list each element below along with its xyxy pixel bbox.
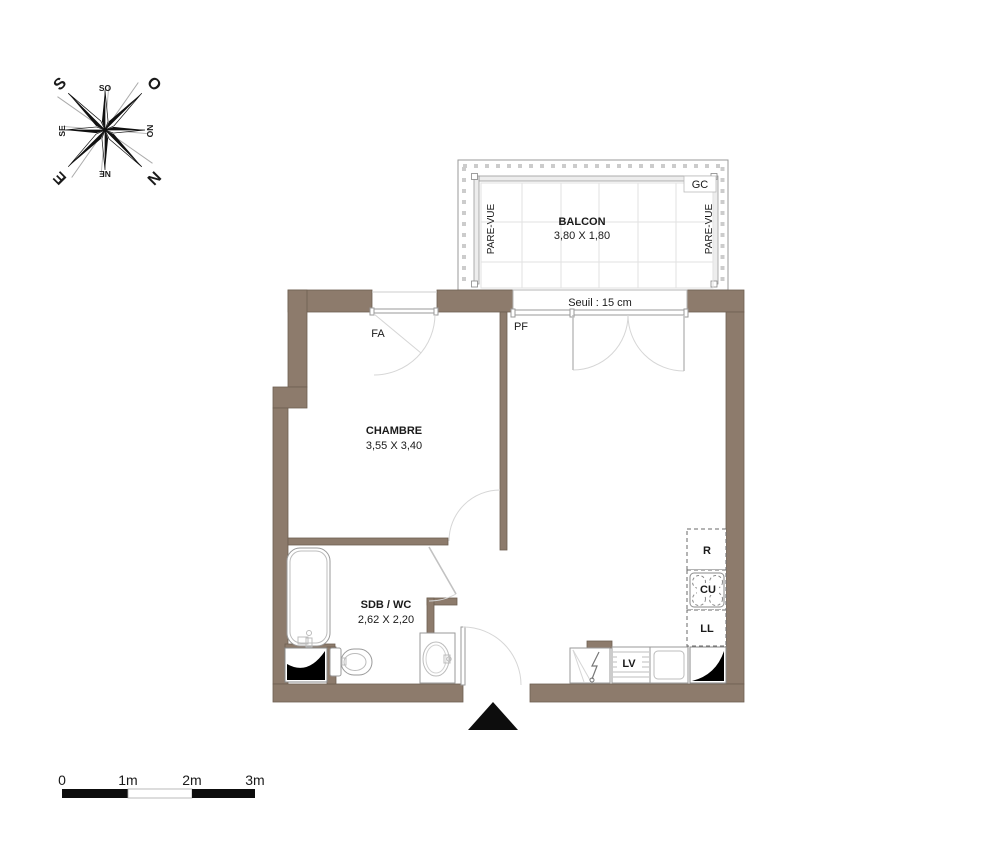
wall-left-jog: [273, 387, 307, 408]
compass-label-so: SO: [99, 83, 112, 93]
pf-french-door: [511, 309, 688, 371]
scale-segment-1: [62, 789, 128, 798]
compass-star: [65, 90, 145, 170]
scale-tick-0: 0: [58, 772, 66, 788]
floor-plan-page: S O N E SO NO NE SE GC B: [0, 0, 1000, 857]
washing-machine-label: LL: [700, 623, 714, 635]
pare-vue-left-label: PARE-VUE: [486, 203, 497, 254]
dishwasher-label: LV: [622, 658, 636, 670]
washbasin: [420, 633, 455, 683]
partition-electrical-stub: [587, 641, 612, 648]
scale-tick-1m: 1m: [118, 772, 137, 788]
wall-top-mid: [437, 290, 513, 312]
partition-chambre-sejour: [500, 312, 507, 550]
compass-label-o: O: [143, 74, 164, 95]
compass-label-ne: NE: [99, 169, 111, 179]
fridge-label: R: [703, 545, 711, 557]
chambre-label: CHAMBRE: [366, 425, 422, 437]
dishwasher: LV: [612, 647, 650, 683]
scale-tick-3m: 3m: [245, 772, 264, 788]
kitchen-sink: [650, 647, 688, 683]
kitchen: R CU LL: [570, 529, 726, 683]
sdb-dims: 2,62 X 2,20: [358, 614, 414, 626]
hob-box: CU: [687, 570, 726, 610]
balcony-dims: 3,80 X 1,80: [554, 230, 610, 242]
compass-label-n: N: [144, 168, 164, 188]
partition-sdb-right: [427, 598, 434, 633]
compass-label-no: NO: [145, 125, 155, 138]
gc-label: GC: [692, 179, 709, 191]
wall-top-right: [687, 290, 744, 312]
privacy-screen-top: [479, 176, 713, 181]
chambre-door: [449, 490, 500, 541]
entrance-door: [461, 627, 521, 685]
pf-label: PF: [514, 321, 528, 333]
openings: FA Seuil : 15 cm PF: [370, 290, 688, 685]
bathtub: [287, 548, 330, 647]
shaft-left: [285, 648, 327, 682]
wall-bottom-left: [273, 684, 463, 702]
balcony-label: BALCON: [558, 216, 605, 228]
wall-right: [726, 312, 744, 684]
compass-label-se: SE: [57, 125, 67, 137]
toilet: [330, 648, 372, 676]
compass-label-e: E: [50, 168, 70, 188]
pare-vue-right-label: PARE-VUE: [704, 203, 715, 254]
fa-label: FA: [371, 328, 385, 340]
wall-bottom-right: [530, 684, 744, 702]
hob-label: CU: [700, 584, 716, 596]
partition-chambre-sdb: [288, 538, 448, 545]
compass-rose: S O N E SO NO NE SE: [50, 74, 164, 188]
electrical-panel: [570, 648, 610, 683]
chambre-dims: 3,55 X 3,40: [366, 440, 422, 452]
wall-left-lower: [273, 408, 288, 684]
floor-plan-drawing: S O N E SO NO NE SE GC B: [0, 0, 1000, 857]
scale-segment-2: [128, 789, 192, 798]
entrance-arrow: [468, 702, 518, 730]
privacy-screen-left: [474, 176, 479, 284]
compass-label-s: S: [51, 74, 71, 94]
threshold-strip: Seuil : 15 cm: [513, 290, 687, 312]
wall-left-upper: [288, 290, 307, 387]
sdb-label: SDB / WC: [361, 599, 412, 611]
scale-tick-2m: 2m: [182, 772, 201, 788]
walls: [273, 290, 744, 702]
sdb-door: [429, 547, 456, 601]
scale-bar: 0 1m 2m 3m: [58, 772, 265, 798]
room-labels: CHAMBRE 3,55 X 3,40 SDB / WC 2,62 X 2,20: [358, 425, 422, 626]
balcony: GC BALCON 3,80 X 1,80 PARE-VUE PARE-VUE: [458, 160, 728, 290]
shaft-right: [690, 647, 726, 683]
scale-segment-3: [192, 789, 255, 798]
threshold-label: Seuil : 15 cm: [568, 297, 632, 309]
